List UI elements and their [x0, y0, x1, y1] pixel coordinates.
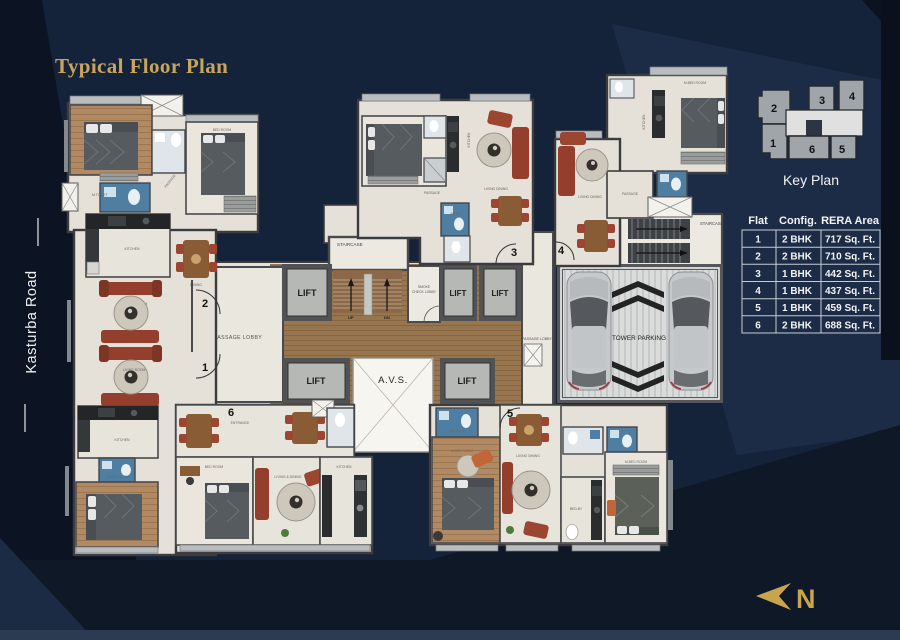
- svg-text:TOWER PARKING: TOWER PARKING: [612, 336, 666, 342]
- svg-text:LIFT: LIFT: [450, 289, 467, 298]
- svg-text:2: 2: [771, 103, 777, 115]
- svg-text:LIVING DINING: LIVING DINING: [516, 454, 540, 458]
- svg-text:3: 3: [511, 247, 517, 259]
- svg-text:6: 6: [755, 320, 761, 331]
- svg-text:DN: DN: [384, 315, 390, 320]
- svg-text:710 Sq. Ft.: 710 Sq. Ft.: [825, 252, 875, 263]
- svg-text:LIFT: LIFT: [307, 376, 326, 386]
- svg-text:BATH: BATH: [451, 212, 460, 216]
- svg-text:1 BHK: 1 BHK: [782, 269, 813, 280]
- svg-text:2 BHK: 2 BHK: [782, 320, 813, 331]
- svg-text:6: 6: [809, 144, 815, 156]
- svg-text:N: N: [796, 584, 816, 614]
- svg-text:STAIRCASE: STAIRCASE: [337, 242, 363, 247]
- svg-text:6: 6: [228, 407, 234, 419]
- svg-text:LIVING & DINING: LIVING & DINING: [274, 475, 301, 479]
- svg-text:KITCHEN: KITCHEN: [467, 132, 471, 147]
- svg-text:2 BHK: 2 BHK: [782, 252, 813, 263]
- svg-text:RERA Area: RERA Area: [821, 215, 880, 227]
- svg-text:SMOKE: SMOKE: [418, 285, 431, 289]
- svg-text:ENTRANCE: ENTRANCE: [231, 421, 250, 425]
- svg-text:PASSAGE: PASSAGE: [622, 192, 639, 196]
- svg-text:5: 5: [507, 408, 513, 420]
- svg-text:M.BED ROOM: M.BED ROOM: [451, 449, 473, 453]
- svg-text:BED-BY: BED-BY: [570, 507, 583, 511]
- svg-text:3: 3: [819, 95, 825, 107]
- svg-text:717 Sq. Ft.: 717 Sq. Ft.: [825, 235, 875, 246]
- svg-text:A.V.S.: A.V.S.: [378, 375, 408, 386]
- svg-text:Kasturba Road: Kasturba Road: [24, 270, 40, 373]
- svg-text:BED ROOM: BED ROOM: [213, 128, 232, 132]
- svg-text:PASSAGE LOBBY: PASSAGE LOBBY: [522, 337, 552, 341]
- svg-text:1 BHK: 1 BHK: [782, 286, 813, 297]
- svg-text:LIFT: LIFT: [298, 288, 317, 298]
- svg-text:PASSAGE LOBBY: PASSAGE LOBBY: [214, 335, 262, 341]
- svg-text:2: 2: [755, 252, 761, 263]
- svg-text:M.BED ROOM: M.BED ROOM: [625, 460, 647, 464]
- svg-text:LIFT: LIFT: [458, 376, 477, 386]
- svg-text:M.BED ROOM: M.BED ROOM: [684, 81, 706, 85]
- svg-text:688 Sq. Ft.: 688 Sq. Ft.: [825, 320, 875, 331]
- svg-text:KITCHEN: KITCHEN: [125, 247, 140, 251]
- svg-text:BED ROOM: BED ROOM: [205, 465, 224, 469]
- svg-text:1: 1: [755, 235, 761, 246]
- svg-text:1: 1: [202, 362, 208, 374]
- svg-text:LIVING DINING: LIVING DINING: [484, 187, 508, 191]
- svg-text:Key Plan: Key Plan: [783, 172, 839, 188]
- svg-text:LIVING DINING: LIVING DINING: [578, 195, 602, 199]
- svg-text:4: 4: [755, 286, 761, 297]
- svg-text:UP: UP: [348, 315, 354, 320]
- svg-text:437 Sq. Ft.: 437 Sq. Ft.: [825, 286, 875, 297]
- svg-text:1: 1: [770, 138, 776, 150]
- svg-text:1 BHK: 1 BHK: [782, 303, 813, 314]
- svg-text:4: 4: [558, 245, 565, 257]
- svg-text:KITCHEN: KITCHEN: [642, 114, 646, 129]
- svg-text:PASSAGE: PASSAGE: [424, 191, 441, 195]
- svg-text:2: 2: [202, 298, 208, 310]
- svg-text:M.TOILET: M.TOILET: [92, 193, 108, 197]
- svg-text:STAIRCASE: STAIRCASE: [700, 221, 724, 226]
- svg-text:3: 3: [755, 269, 761, 280]
- svg-text:459 Sq. Ft.: 459 Sq. Ft.: [825, 303, 875, 314]
- svg-text:KITCHEN: KITCHEN: [115, 438, 130, 442]
- svg-text:4: 4: [849, 91, 856, 103]
- svg-text:M.BED ROOM: M.BED ROOM: [107, 475, 129, 479]
- svg-text:5: 5: [839, 144, 845, 156]
- svg-text:2 BHK: 2 BHK: [782, 235, 813, 246]
- svg-text:442 Sq. Ft.: 442 Sq. Ft.: [825, 269, 875, 280]
- svg-text:Flat: Flat: [748, 215, 768, 227]
- svg-text:LIFT: LIFT: [492, 289, 509, 298]
- svg-text:5: 5: [755, 303, 761, 314]
- svg-text:KITCHEN: KITCHEN: [337, 465, 352, 469]
- svg-text:Typical Floor Plan: Typical Floor Plan: [55, 54, 228, 78]
- svg-text:Config.: Config.: [779, 215, 817, 227]
- svg-text:LIVING ROOM: LIVING ROOM: [123, 368, 146, 372]
- svg-text:PASSAGE: PASSAGE: [449, 429, 466, 433]
- svg-text:CHECK LOBBY: CHECK LOBBY: [412, 290, 437, 294]
